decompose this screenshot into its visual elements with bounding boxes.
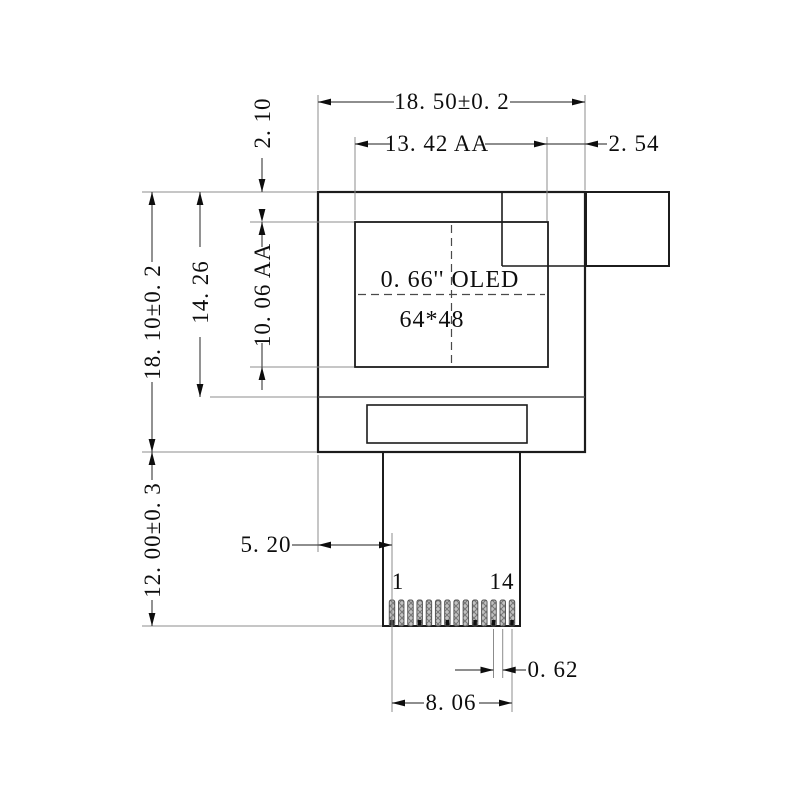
technical-drawing-page: 0. 66'' OLED 64*48 18. 50±0. 2 13. 42 AA — [0, 0, 800, 800]
pin — [408, 600, 414, 626]
pin-solder-dot — [492, 620, 496, 626]
dim-pin-row-width-label: 8. 06 — [426, 690, 477, 715]
dim-active-area-height-label: 10. 06 AA — [250, 243, 275, 347]
pin — [482, 600, 488, 626]
dim-glass-height-label: 14. 26 — [188, 260, 213, 324]
pin — [426, 600, 432, 626]
dim-tab-left-offset: 5. 20 — [241, 532, 393, 557]
display-resolution-label: 64*48 — [400, 307, 465, 333]
dim-right-margin: 2. 54 — [585, 131, 660, 156]
pin-14-label: 14 — [490, 569, 515, 594]
pin — [500, 600, 506, 626]
dim-top-margin: 2. 10 — [250, 98, 275, 248]
dim-tab-height-label: 12. 00±0. 3 — [140, 482, 165, 598]
extension-lines — [142, 95, 585, 712]
right-hatch-block — [586, 192, 669, 266]
dim-pin-row-width: 8. 06 — [392, 690, 512, 715]
dim-total-width: 18. 50±0. 2 — [318, 89, 585, 114]
dim-total-width-label: 18. 50±0. 2 — [394, 89, 510, 114]
pin-solder-dot — [446, 620, 450, 626]
bonding-hatch-bar — [367, 405, 527, 443]
dim-total-height-label: 18. 10±0. 2 — [140, 264, 165, 380]
oled-dimension-drawing: 0. 66'' OLED 64*48 18. 50±0. 2 13. 42 AA — [0, 0, 800, 800]
dim-pin-pitch: 0. 62 — [455, 657, 579, 682]
pin-solder-dot — [510, 620, 514, 626]
dim-glass-height: 14. 26 — [188, 192, 213, 397]
dim-active-area-height: 10. 06 AA — [250, 243, 275, 390]
dim-active-area-width: 13. 42 AA — [355, 131, 607, 156]
active-area: 0. 66'' OLED 64*48 — [355, 222, 548, 367]
pin-1-label: 1 — [392, 569, 405, 594]
pin — [435, 600, 441, 626]
module-body — [318, 192, 669, 626]
pin-solder-dot — [473, 620, 477, 626]
dim-top-margin-label: 2. 10 — [250, 98, 275, 149]
pin — [454, 600, 460, 626]
dim-tab-left-offset-label: 5. 20 — [241, 532, 292, 557]
dim-pin-pitch-label: 0. 62 — [528, 657, 579, 682]
connector-tab-outline — [383, 452, 520, 626]
dim-right-margin-label: 2. 54 — [609, 131, 660, 156]
dim-tab-height: 12. 00±0. 3 — [140, 452, 165, 626]
pin-solder-dot — [418, 620, 422, 626]
dim-total-height: 18. 10±0. 2 — [140, 192, 165, 452]
pin — [463, 600, 469, 626]
pin — [398, 600, 404, 626]
dim-active-area-width-label: 13. 42 AA — [385, 131, 489, 156]
pin-array — [389, 600, 515, 626]
display-size-label: 0. 66'' OLED — [381, 267, 520, 293]
